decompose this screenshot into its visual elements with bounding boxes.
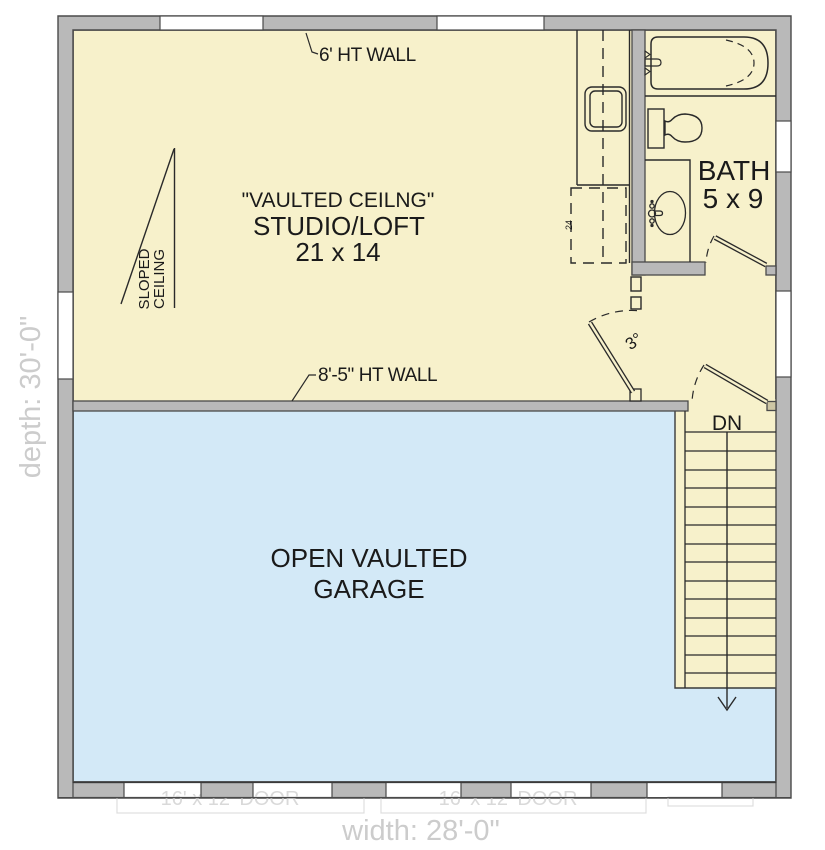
- svg-text:CEILING: CEILING: [151, 249, 168, 309]
- svg-text:24: 24: [564, 220, 574, 230]
- svg-text:8'-5" HT WALL: 8'-5" HT WALL: [318, 365, 437, 386]
- svg-text:5 x 9: 5 x 9: [703, 183, 764, 214]
- svg-text:OPEN VAULTED: OPEN VAULTED: [271, 543, 468, 573]
- svg-text:6' HT WALL: 6' HT WALL: [319, 45, 416, 66]
- svg-text:"VAULTED CEILNG": "VAULTED CEILNG": [242, 189, 435, 212]
- svg-text:depth: 30'-0": depth: 30'-0": [15, 316, 47, 479]
- svg-text:21 x 14: 21 x 14: [295, 237, 380, 267]
- svg-text:width: 28'-0": width: 28'-0": [341, 815, 500, 847]
- svg-text:DN: DN: [712, 412, 742, 435]
- svg-text:GARAGE: GARAGE: [313, 574, 424, 604]
- svg-text:BATH: BATH: [698, 155, 771, 186]
